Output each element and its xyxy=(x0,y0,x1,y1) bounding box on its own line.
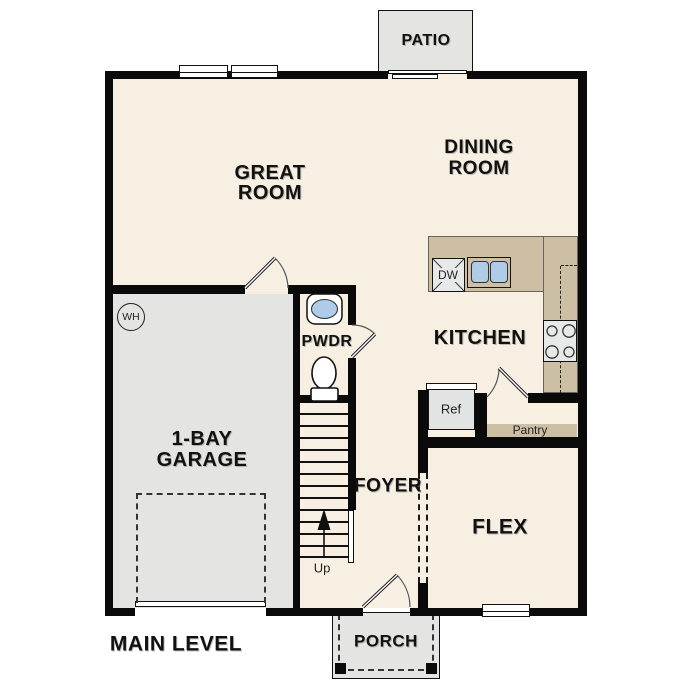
wall-segment xyxy=(578,71,587,616)
pantry-label: Pantry xyxy=(513,423,548,437)
foyer-label: FOYER xyxy=(354,477,422,496)
dining-room-label: DINING ROOM xyxy=(444,137,514,179)
porch-label: PORCH xyxy=(354,633,418,650)
sink-basin-left xyxy=(471,261,489,283)
stair-railing xyxy=(348,510,354,563)
wall-segment xyxy=(113,285,245,294)
wall-segment xyxy=(293,285,300,608)
wall-segment xyxy=(105,71,113,616)
garage-label: 1-BAY GARAGE xyxy=(157,429,248,471)
garage-door-dashed-outline xyxy=(136,493,266,603)
great-room-label: GREAT ROOM xyxy=(234,163,305,203)
sliding-door-leaf xyxy=(392,74,438,79)
sink-basin-right xyxy=(490,261,508,283)
counter-dashed-line-h xyxy=(561,265,577,267)
wall-segment xyxy=(266,608,363,616)
up-label: Up xyxy=(314,561,331,576)
water-heater-label: WH xyxy=(122,311,140,323)
porch-post-right xyxy=(426,663,437,674)
wall-segment xyxy=(467,71,587,79)
wall-segment xyxy=(300,395,348,403)
refrigerator-label: Ref xyxy=(441,402,461,417)
pwdr-label: PWDR xyxy=(302,334,353,350)
wall-segment xyxy=(418,583,428,608)
window xyxy=(231,65,278,78)
wall-segment xyxy=(105,608,135,616)
wall-segment xyxy=(418,390,428,473)
porch-post-left xyxy=(335,663,346,674)
patio-label: PATIO xyxy=(401,33,450,49)
wall-segment xyxy=(348,285,356,325)
dishwasher-label: DW xyxy=(437,268,459,282)
wall-segment xyxy=(418,437,578,448)
stairs xyxy=(300,403,348,563)
floor-plan: WH xyxy=(0,0,687,687)
flex-label: FLEX xyxy=(472,517,528,538)
wall-segment xyxy=(528,393,578,403)
stove xyxy=(543,320,577,362)
kitchen-label: KITCHEN xyxy=(434,328,526,348)
main-level-label: MAIN LEVEL xyxy=(110,634,242,655)
window xyxy=(482,604,530,617)
window xyxy=(179,65,228,78)
water-heater: WH xyxy=(117,303,145,331)
